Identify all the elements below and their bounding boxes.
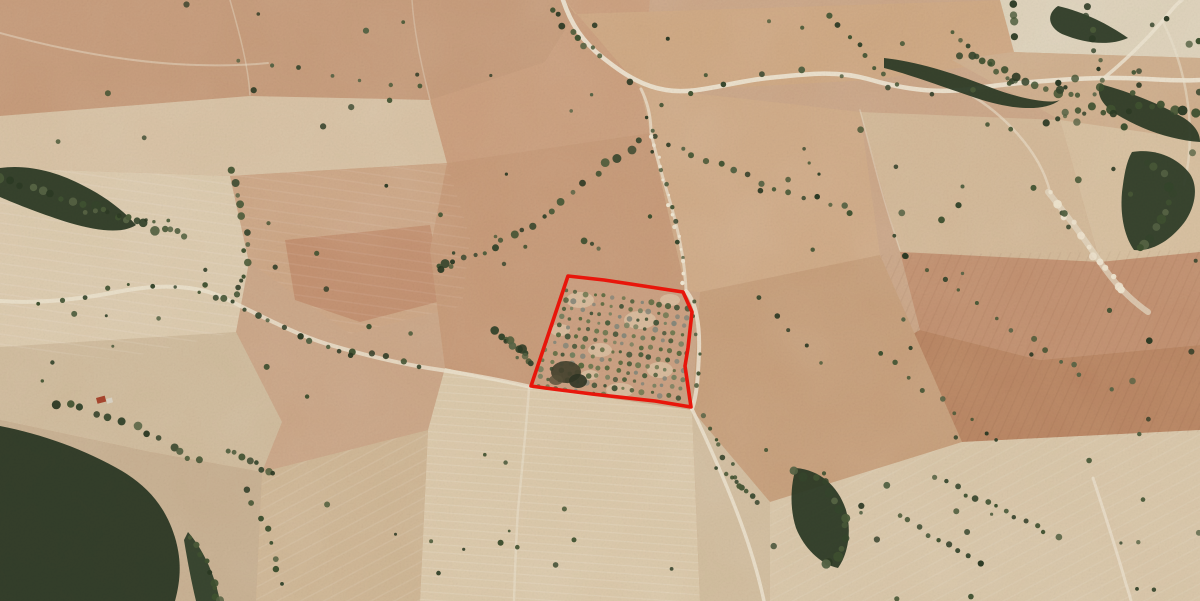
satellite-image-canvas[interactable]	[0, 0, 1200, 601]
satellite-grain-texture	[0, 0, 1200, 601]
aerial-scene	[0, 0, 1200, 601]
